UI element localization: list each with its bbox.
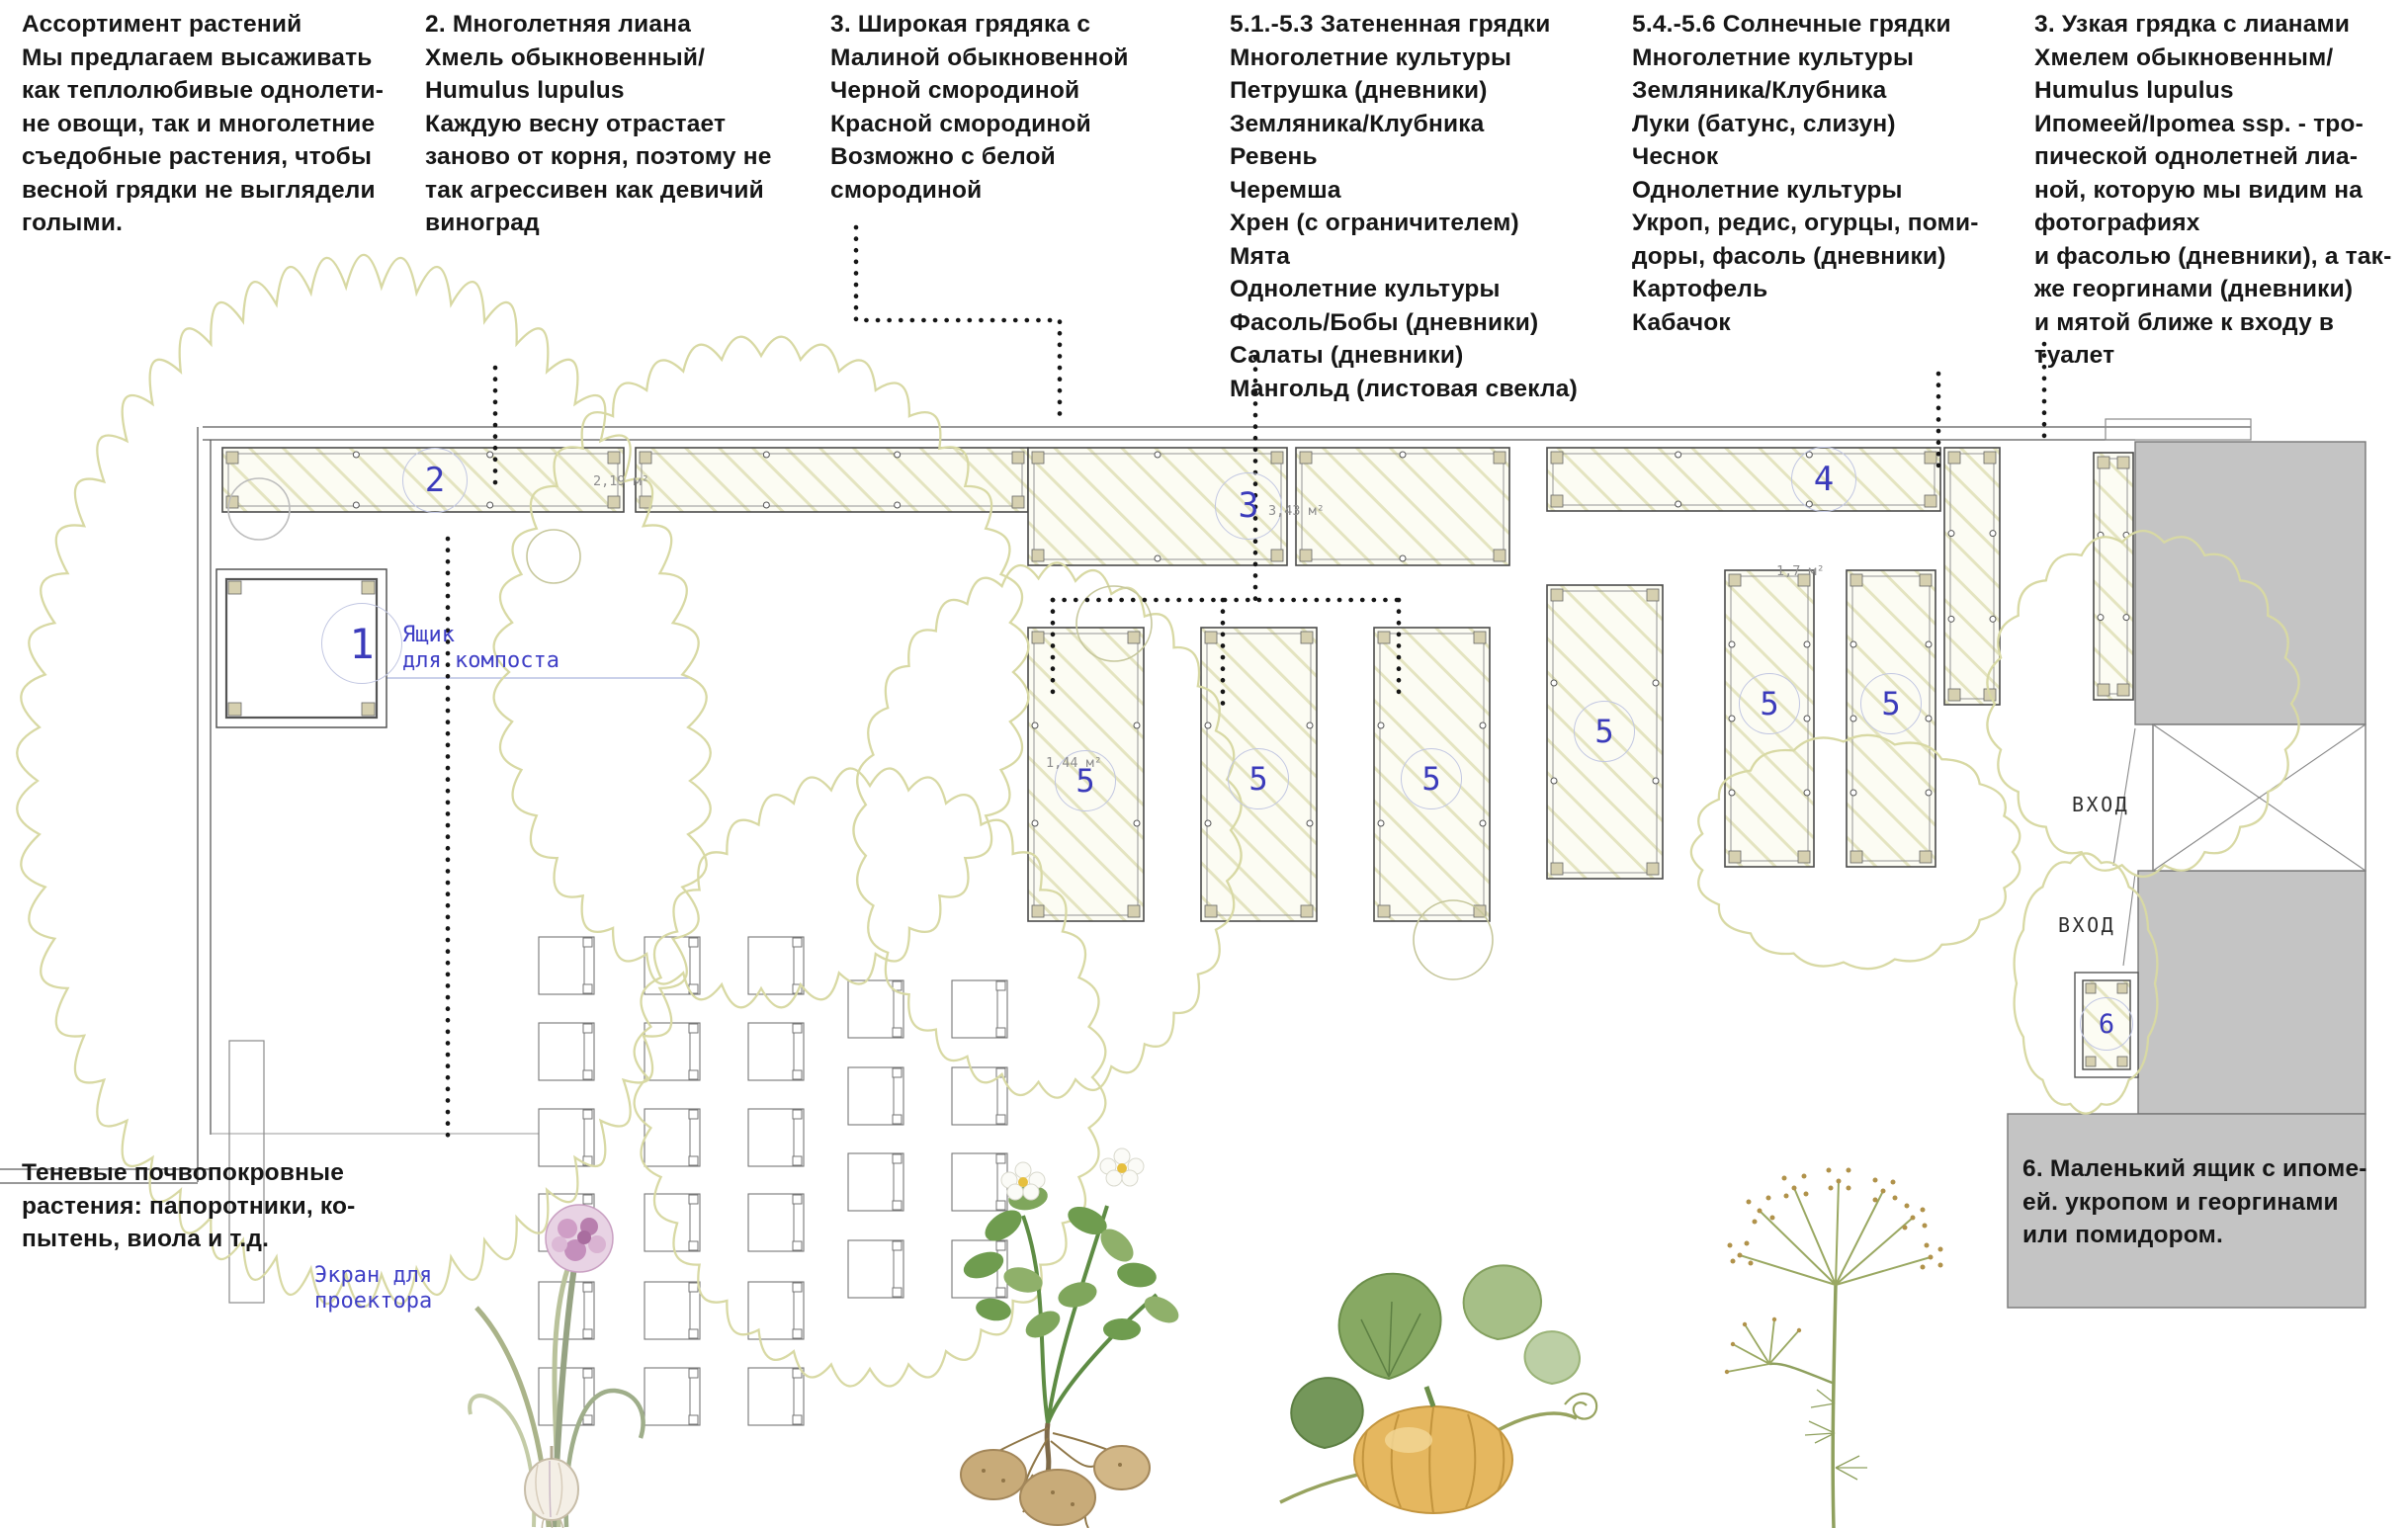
table-square xyxy=(645,1109,700,1166)
table-square xyxy=(748,1109,804,1166)
leader-line xyxy=(856,227,1060,419)
table-square xyxy=(645,937,700,994)
dill-illustration xyxy=(1725,1168,1943,1528)
table-square xyxy=(645,1368,700,1425)
bed-number-marker: 6 xyxy=(2080,997,2133,1051)
annotation-shaded-beds: 5.1.-5.3 Затененная грядки Многолетние к… xyxy=(1230,8,1655,405)
furniture-grid xyxy=(539,937,1007,1425)
table-square xyxy=(539,937,594,994)
table-square xyxy=(539,1023,594,1080)
annotation-shade-plants: Теневые почвопокровные растения: папорот… xyxy=(22,1156,407,1256)
bed-number-marker: 4 xyxy=(1791,447,1856,512)
table-square xyxy=(748,937,804,994)
bed-number-marker: 1 xyxy=(321,603,402,684)
annotation-intro: Ассортимент растений Мы предлагаем высаж… xyxy=(22,8,417,240)
annotation-sunny-beds: 5.4.-5.6 Солнечные грядки Многолетние ку… xyxy=(1632,8,2057,339)
table-square xyxy=(748,1368,804,1425)
annotation-small-box: 6. Маленький ящик с ипоме- ей. укропом и… xyxy=(2022,1152,2378,1252)
table-square xyxy=(848,980,903,1038)
tree-canopy-outline xyxy=(494,337,1029,1008)
bed-number-marker: 5 xyxy=(1228,748,1289,809)
bed-number-marker: 2 xyxy=(402,448,468,513)
projector-screen-label: Экран для проектора xyxy=(314,1263,532,1316)
table-square xyxy=(848,1240,903,1298)
bed-4-vertical xyxy=(1944,448,2000,705)
table-square xyxy=(748,1194,804,1251)
bed-area-label: 1,44 м² xyxy=(1046,755,1102,771)
table-square xyxy=(539,1109,594,1166)
garden-plan-page: Ассортимент растений Мы предлагаем высаж… xyxy=(0,0,2408,1528)
table-square xyxy=(645,1282,700,1339)
table-square xyxy=(952,980,1007,1038)
annotation-vine: 2. Многолетняя лиана Хмель обыкновенный/… xyxy=(425,8,850,240)
compost-box-label: Ящик для компоста xyxy=(402,623,559,674)
bed-number-marker: 5 xyxy=(1574,701,1635,762)
pumpkin-illustration xyxy=(1280,1265,1596,1513)
annotation-wide-bed: 3. Широкая грядяка с Малиной обыкновенно… xyxy=(830,8,1216,207)
table-square xyxy=(848,1067,903,1125)
bed-area-label: 2,19 м² xyxy=(593,473,649,489)
annotation-narrow-bed: 3. Узкая грядка с лианами Хмелем обыкнов… xyxy=(2034,8,2408,373)
bed-3-right xyxy=(1296,448,1509,565)
bed-narrow-right xyxy=(2094,453,2133,700)
bed-number-marker: 5 xyxy=(1401,748,1462,809)
entrance-label-2: ВХОД xyxy=(2058,913,2115,937)
bed-4 xyxy=(1547,448,1940,511)
bed-2-right xyxy=(636,448,1028,512)
table-square xyxy=(848,1153,903,1211)
table-square xyxy=(748,1023,804,1080)
bed-number-marker: 5 xyxy=(1860,673,1922,734)
tree-trunk-circle xyxy=(527,530,580,583)
bed-area-label: 1,7 м² xyxy=(1776,563,1825,579)
bed-number-marker: 5 xyxy=(1739,673,1800,734)
table-square xyxy=(539,1368,594,1425)
bed-area-label: 3,43 м² xyxy=(1268,503,1325,519)
potato-flower xyxy=(1001,1162,1045,1200)
table-square xyxy=(952,1153,1007,1211)
entrance-label-1: ВХОД xyxy=(2072,793,2129,816)
potato-flower xyxy=(1100,1148,1144,1186)
garden-beds xyxy=(216,448,2138,1077)
